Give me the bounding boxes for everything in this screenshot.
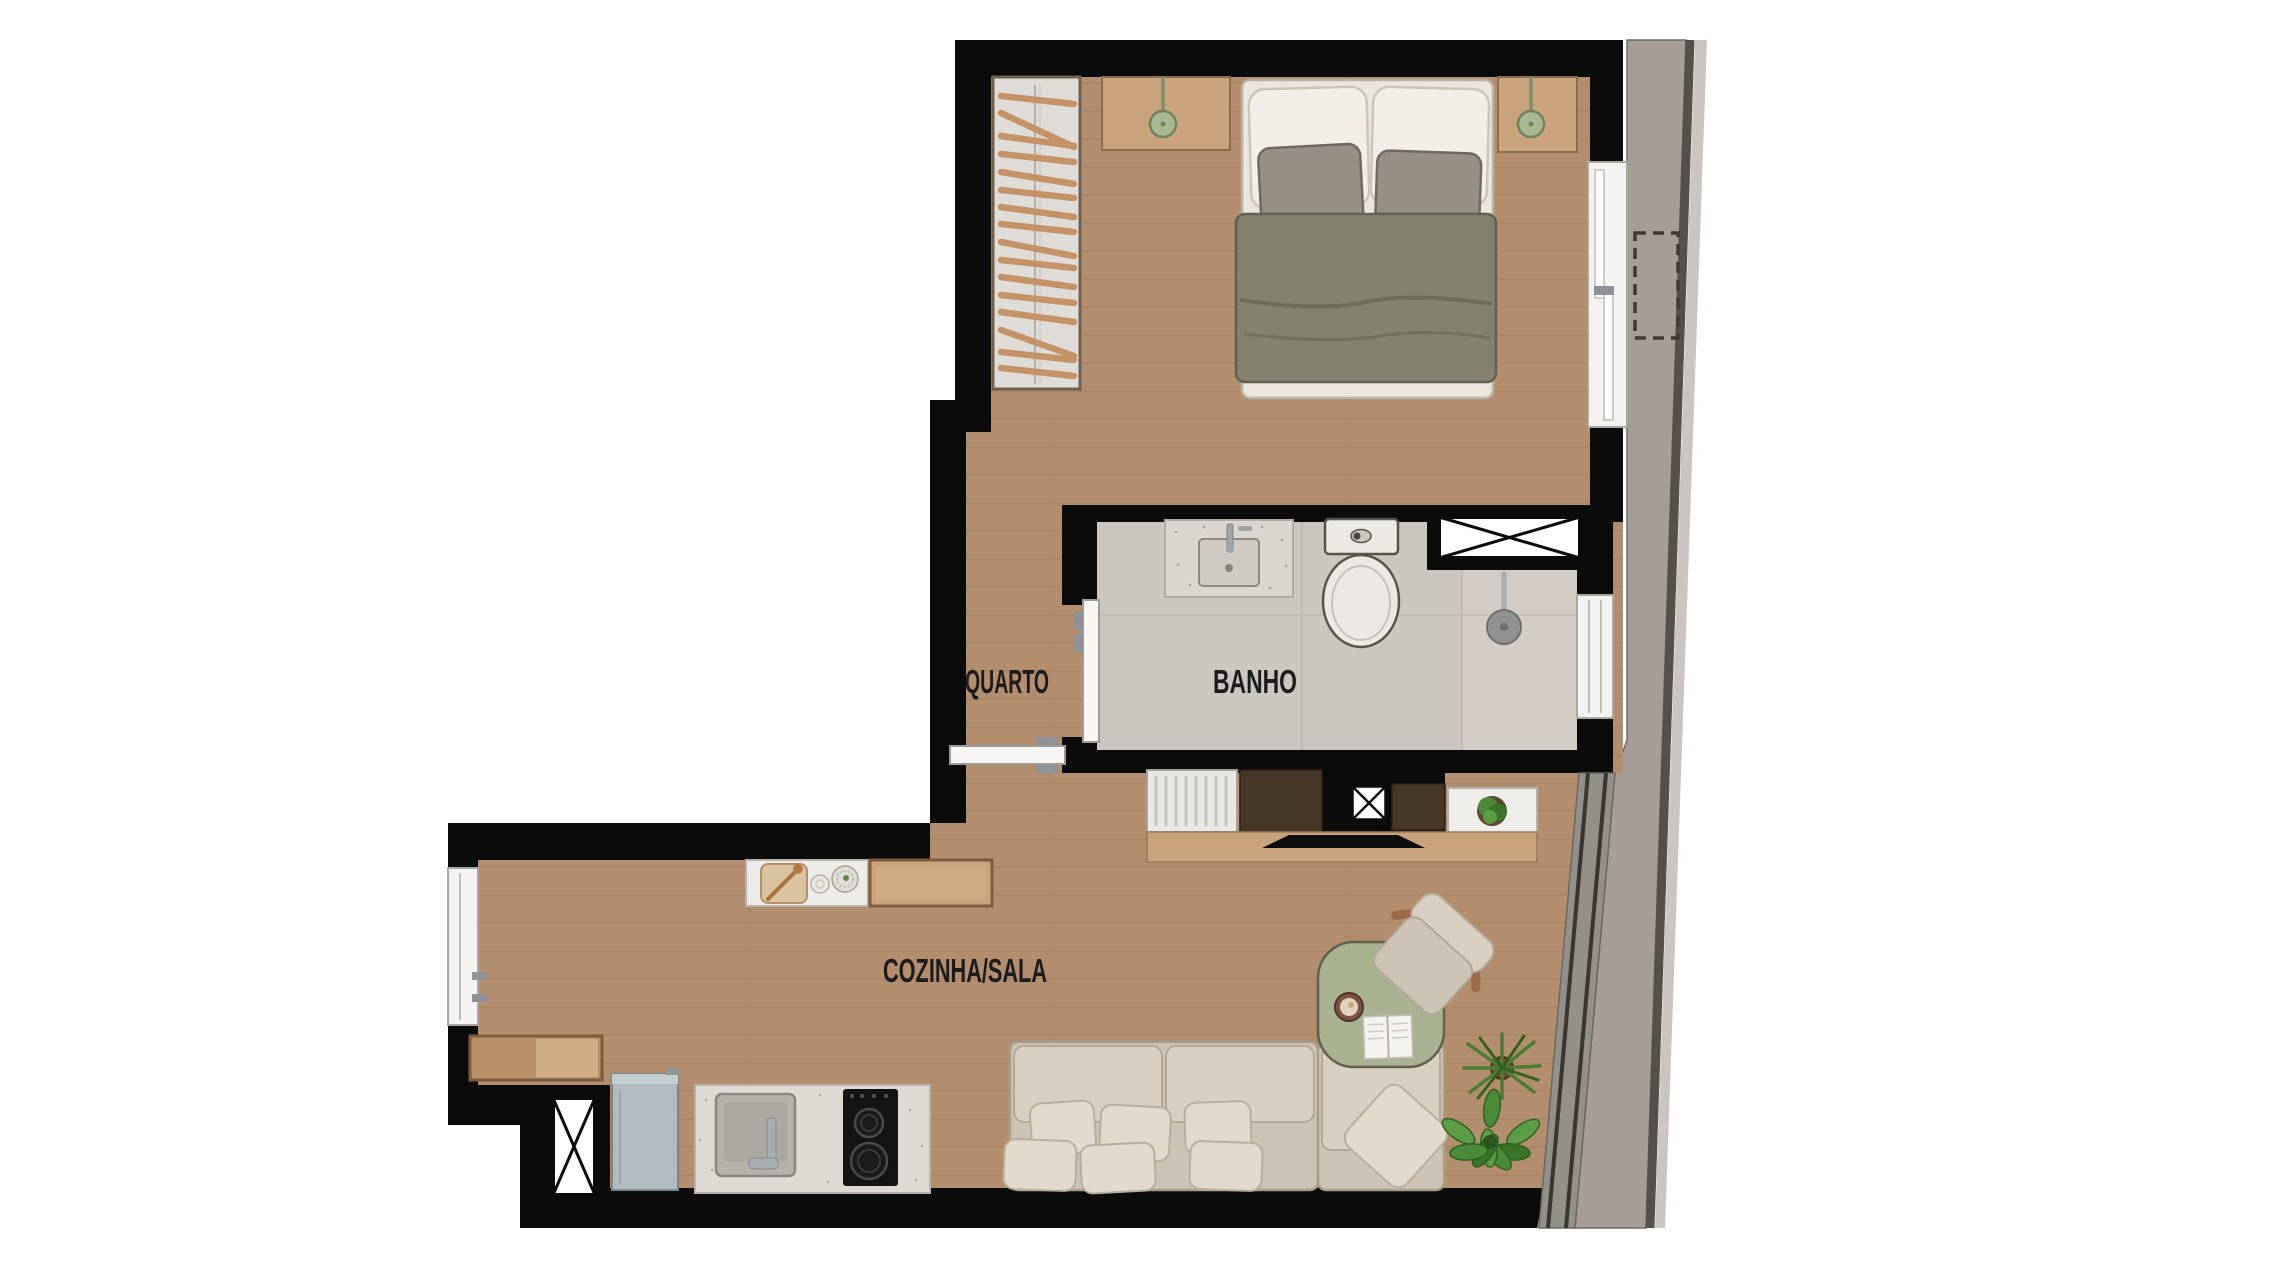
cooktop: [843, 1089, 898, 1186]
sofa-pillows: [1003, 1100, 1263, 1194]
wall-bedroom-right-upper: [1590, 40, 1623, 162]
wall-bathroom-right-upper: [1577, 505, 1613, 595]
toilet: [1323, 519, 1399, 647]
bathroom-window: [1577, 595, 1613, 718]
open-book-icon: [1363, 1015, 1412, 1059]
bedroom-furniture: [993, 77, 1577, 398]
fridge-hinge-icon: [666, 1068, 679, 1075]
wall-door-stub: [930, 748, 952, 773]
window-handle-icon: [472, 972, 488, 980]
door-handle-icon: [1036, 737, 1058, 745]
top-counter: [746, 860, 868, 906]
room-label-cozinha-sala: COZINHA/SALA: [883, 952, 1047, 989]
dark-cabinet-left: [1240, 770, 1322, 832]
vent-shaft-bathroom: [1439, 517, 1580, 558]
door-handle-icon: [1074, 634, 1083, 652]
wall-bathroom-right-lower: [1577, 718, 1613, 773]
sofa: [1003, 1042, 1358, 1194]
tv: [1262, 835, 1425, 848]
toilet-bowl: [1323, 555, 1399, 647]
wall-kitchen-top: [448, 823, 930, 860]
window-handle-icon: [1594, 286, 1614, 295]
kitchen-sink: [716, 1094, 795, 1176]
wall-shelf: [870, 860, 992, 906]
window-handle-icon: [472, 994, 488, 1002]
wall-bottom: [520, 1188, 1545, 1228]
wall-bedroom-left: [955, 40, 991, 432]
floor-plan-page: QUARTO BANHO COZINHA/SALA: [0, 0, 2280, 1283]
plant-tray: [1448, 788, 1537, 834]
louver-cabinet: [1147, 770, 1237, 832]
window-bench: [470, 1036, 602, 1080]
bedroom-window: [1588, 162, 1627, 427]
sink-drain-icon: [1225, 564, 1233, 572]
wall-corridor-left-step: [930, 400, 991, 432]
door-handle-icon: [1036, 765, 1058, 773]
coffee-cup-icon: [1335, 993, 1363, 1021]
vent-shaft-kitchen: [553, 1098, 595, 1195]
wall-bedroom-top: [955, 40, 1623, 77]
wall-bathroom-bottom: [1062, 750, 1590, 773]
double-bed: [1236, 80, 1496, 398]
room-label-banho: BANHO: [1213, 663, 1297, 700]
plate-icon: [811, 875, 829, 893]
kitchen-counter: [695, 1085, 930, 1193]
bathroom-vanity: [1165, 520, 1293, 597]
fridge: [612, 1068, 679, 1190]
vent-shaft-console: [1352, 786, 1386, 820]
room-label-quarto: QUARTO: [965, 663, 1049, 700]
door-handle-icon: [1074, 612, 1083, 630]
wall-bathroom-left-upper: [1062, 505, 1097, 605]
floor-plan-canvas: QUARTO BANHO COZINHA/SALA: [0, 0, 2280, 1283]
wall-kitchen-left-upper: [448, 860, 478, 868]
wardrobe: [993, 77, 1080, 389]
dark-cabinet-right: [1392, 784, 1445, 830]
